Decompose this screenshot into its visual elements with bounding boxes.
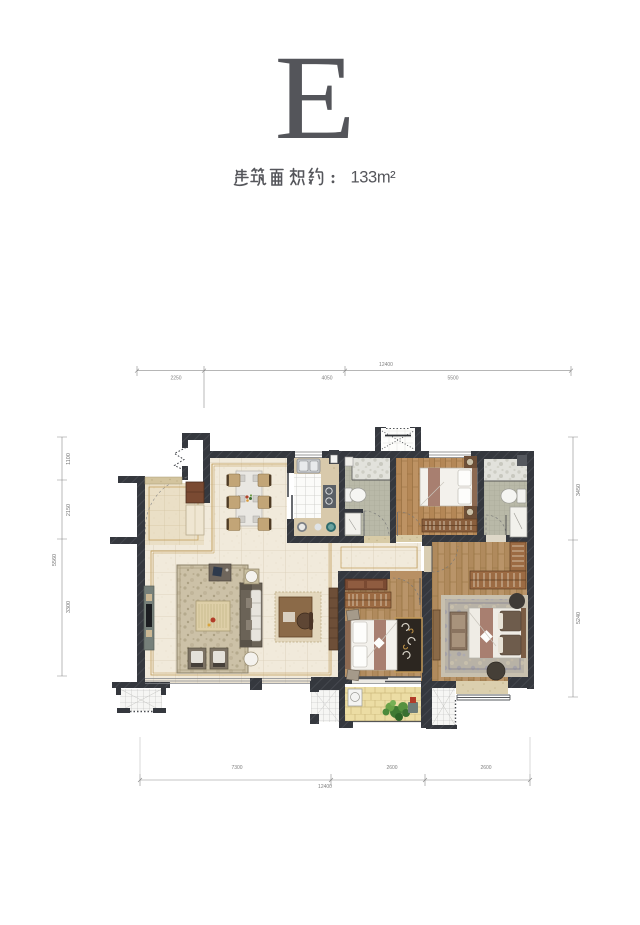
- svg-text:3450: 3450: [576, 484, 582, 496]
- svg-text:2250: 2250: [170, 376, 181, 382]
- svg-text:5560: 5560: [52, 554, 58, 566]
- svg-text:4050: 4050: [321, 376, 332, 382]
- svg-text:2600: 2600: [386, 765, 397, 771]
- svg-text:2150: 2150: [66, 504, 72, 516]
- svg-text:7300: 7300: [231, 765, 242, 771]
- svg-text:12400: 12400: [318, 784, 332, 790]
- svg-text:5500: 5500: [447, 376, 458, 382]
- svg-text:12400: 12400: [379, 362, 393, 368]
- svg-text:5240: 5240: [576, 612, 582, 624]
- svg-text:1100: 1100: [66, 453, 72, 465]
- svg-text:133m²: 133m²: [351, 169, 397, 187]
- svg-text:3300: 3300: [66, 601, 72, 613]
- svg-text:E: E: [274, 31, 355, 165]
- svg-text:2600: 2600: [480, 765, 491, 771]
